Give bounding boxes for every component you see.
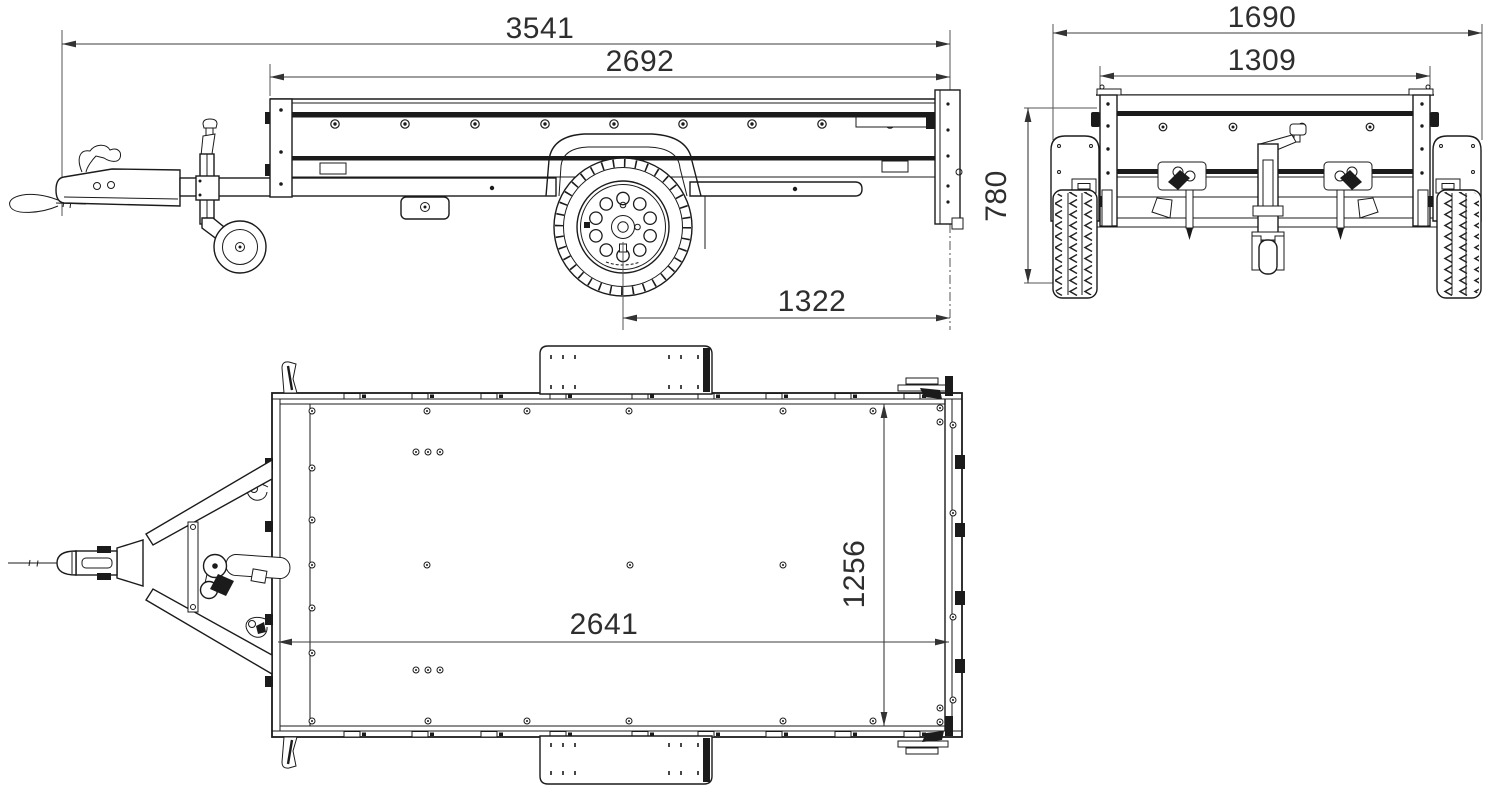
- edge-clip: [412, 394, 428, 400]
- fender-screw: [668, 743, 670, 747]
- jockey-tire-rear: [1259, 240, 1277, 274]
- corner-cap: [1097, 89, 1121, 95]
- edge-clip: [344, 732, 360, 738]
- cable-tick: [29, 560, 30, 566]
- coupler-tab: [97, 546, 111, 553]
- rivet-center: [681, 122, 684, 125]
- fender-screw: [550, 771, 552, 775]
- fender-screw: [680, 355, 682, 359]
- screw-hole-center: [872, 410, 874, 412]
- fender-screw: [562, 743, 564, 747]
- rivet-center: [612, 122, 615, 125]
- screw-hole-center: [872, 720, 874, 722]
- screw-hole-center: [311, 720, 313, 722]
- dim-bed-length: 2692: [270, 45, 950, 96]
- coupler-mount: [117, 540, 143, 586]
- latch-bar: [906, 378, 938, 384]
- drawbar-beam: [180, 178, 556, 196]
- fender-screw: [550, 743, 552, 747]
- wheel-bolt-hole: [600, 198, 612, 210]
- fender-plate: [540, 346, 712, 394]
- screw-hole-center: [628, 720, 630, 722]
- fender-screw: [668, 355, 670, 359]
- dim-label-bed-length: 2692: [606, 45, 675, 78]
- post-bolt: [946, 200, 949, 203]
- dim-label-axle-to-rear: 1322: [778, 285, 847, 318]
- edge-clip-tick: [362, 733, 366, 737]
- jockey-clamp: [196, 176, 219, 200]
- edge-clip-tick: [853, 733, 857, 737]
- frame-rail-rear: [690, 182, 862, 196]
- post-bolt: [946, 154, 949, 157]
- bracket-bolt-center: [424, 206, 427, 209]
- wheel-bolt-hole: [590, 230, 602, 242]
- screw-hole-center: [427, 669, 429, 671]
- wheel-bolt-hole: [634, 244, 646, 256]
- edge-clip-tick: [499, 733, 503, 737]
- hinge-tab: [955, 659, 965, 673]
- dim-label-overall-height: 780: [980, 170, 1013, 222]
- clamp-bolt: [199, 180, 202, 183]
- top-view-drawing: 2641 1256: [8, 346, 965, 784]
- fender-screw: [562, 355, 564, 359]
- corner-cap: [1409, 89, 1433, 95]
- fender-screw: [574, 385, 576, 389]
- screw-hole-center: [782, 720, 784, 722]
- post-bolt: [279, 182, 283, 186]
- fender-screw: [680, 385, 682, 389]
- fender-screw: [680, 771, 682, 775]
- fender-screw: [550, 385, 552, 389]
- front-corner-flag-top: [282, 362, 297, 393]
- clamp-block: [251, 569, 267, 583]
- post-bolt: [1420, 102, 1423, 105]
- coupler-handle: [79, 145, 120, 172]
- post-collar: [1253, 206, 1283, 216]
- side-view-drawing: 3541 2692: [10, 12, 963, 330]
- wheel-bolt-hole: [634, 198, 646, 210]
- fender-screw: [697, 385, 699, 389]
- post-bolt: [279, 150, 283, 154]
- screw-hole-center: [628, 410, 630, 412]
- rail-bolt: [793, 187, 797, 191]
- edge-clip-tick: [853, 395, 857, 399]
- post-bolt: [1106, 147, 1109, 150]
- hinge-tab: [955, 455, 965, 469]
- edge-clip: [766, 732, 782, 738]
- board-latch-left: [1152, 162, 1206, 240]
- latch-rail: [856, 117, 928, 127]
- screw-hole-center: [939, 707, 941, 709]
- edge-clip-tick: [716, 395, 720, 399]
- drawbar-arm-lower: [146, 589, 272, 674]
- post-bolt: [279, 108, 283, 112]
- rivet-center: [333, 122, 336, 125]
- screw-hole-center: [311, 607, 313, 609]
- coupler-tab: [97, 573, 111, 580]
- screw-hole-center: [952, 699, 954, 701]
- tire-tread: [1055, 192, 1095, 296]
- screw-hole-center: [939, 421, 941, 423]
- top-rail: [292, 112, 935, 118]
- screw-hole-center: [415, 451, 417, 453]
- hinge-tab: [955, 591, 965, 605]
- drawing-canvas: 3541 2692: [0, 0, 1500, 792]
- wheel-bolt-hole: [617, 192, 629, 204]
- dim-label-overall-length: 3541: [506, 12, 575, 45]
- rivet-center: [1369, 126, 1372, 129]
- edge-clip: [481, 732, 497, 738]
- post-bolt: [1106, 124, 1109, 127]
- screw-hole-center: [782, 564, 784, 566]
- fender-screw: [550, 355, 552, 359]
- top-fender: [540, 346, 712, 394]
- clamp-bolt: [199, 194, 202, 197]
- latch-strap: [1186, 190, 1193, 228]
- rear-view-drawing: 1690 1309 780: [980, 1, 1482, 298]
- support-strap: [1102, 190, 1112, 226]
- post-hinge-tab: [265, 112, 270, 124]
- post-bolt: [1420, 171, 1423, 174]
- screw-hole-center: [426, 410, 428, 412]
- wheel-bolt-hole: [590, 212, 602, 224]
- edge-clip: [835, 394, 851, 400]
- crank-knob: [1290, 124, 1306, 135]
- edge-clip-tick: [716, 733, 720, 737]
- latch-flag: [1152, 198, 1172, 218]
- screw-hole-center: [939, 721, 941, 723]
- fender-edge-band: [703, 738, 710, 782]
- support-strap: [1418, 190, 1428, 226]
- fender-screw: [562, 385, 564, 389]
- screw-hole-center: [939, 407, 941, 409]
- edge-clip-tick: [784, 395, 788, 399]
- dim-label-bed-inner-width: 1256: [838, 540, 871, 609]
- front-latch-hook-bottom: [246, 617, 268, 637]
- coupler-body: [56, 169, 180, 206]
- screw-hole-center: [311, 467, 313, 469]
- rivet-center: [750, 122, 753, 125]
- rivet-center: [1232, 126, 1235, 129]
- fender-screw: [668, 771, 670, 775]
- screw-hole-center: [311, 564, 313, 566]
- screw-hole-center: [311, 519, 313, 521]
- screw-hole-center: [952, 616, 954, 618]
- edge-clip: [412, 732, 428, 738]
- fender-screw: [562, 771, 564, 775]
- latch-flag: [1358, 198, 1378, 218]
- hook-eye: [249, 621, 256, 628]
- edge-clip: [904, 394, 920, 400]
- cable-loop: [10, 194, 58, 212]
- rear-foot: [952, 218, 963, 229]
- latch-pin: [945, 376, 953, 396]
- dim-label-bed-inner-length: 2641: [570, 608, 639, 641]
- right-tire: [1437, 190, 1481, 298]
- jockey-post: [1258, 144, 1278, 240]
- bottom-fender: [540, 736, 712, 784]
- edge-clip: [835, 732, 851, 738]
- dim-label-overall-width: 1690: [1228, 1, 1297, 34]
- screw-hole-center: [526, 720, 528, 722]
- latch-pin: [945, 716, 953, 736]
- fender-screw: [697, 771, 699, 775]
- wheel-bolt-hole: [644, 212, 656, 224]
- screw-hole-center: [782, 410, 784, 412]
- fender-edge-band: [703, 348, 710, 392]
- post-bolt: [946, 128, 949, 131]
- rivet-center: [543, 122, 546, 125]
- cap-bump: [1426, 85, 1430, 89]
- screw-hole-center: [311, 410, 313, 412]
- beam-bolt: [490, 186, 494, 190]
- edge-clip-tick: [430, 395, 434, 399]
- front-corner-flag-bottom: [282, 737, 297, 768]
- strap-tip: [1186, 228, 1193, 240]
- edge-clip: [481, 394, 497, 400]
- edge-clip-tick: [362, 395, 366, 399]
- edge-clip: [904, 732, 920, 738]
- fender-screw: [697, 355, 699, 359]
- rivet-center: [403, 122, 406, 125]
- fender-plate: [540, 736, 712, 784]
- top-rail: [1117, 111, 1413, 116]
- dim-label-inner-width: 1309: [1228, 44, 1297, 77]
- fender-screw: [574, 771, 576, 775]
- screw-hole-center: [426, 564, 428, 566]
- fender-screw: [680, 743, 682, 747]
- edge-tab: [265, 676, 273, 687]
- crank-arm: [201, 134, 215, 156]
- fender-screw: [574, 743, 576, 747]
- strap-tip: [1337, 228, 1344, 240]
- hook-lever: [256, 622, 266, 634]
- edge-clip-tick: [430, 733, 434, 737]
- hinge-knob: [1430, 112, 1439, 127]
- edge-clip-tick: [650, 395, 654, 399]
- edge-clip: [344, 394, 360, 400]
- latch-bar: [906, 748, 938, 754]
- fender-screw: [668, 385, 670, 389]
- screw-hole-center: [952, 424, 954, 426]
- latch-strap: [1337, 190, 1344, 228]
- screw-hole-center: [526, 410, 528, 412]
- wheel-bolt-hole: [644, 230, 656, 242]
- jockey-hub-center: [239, 246, 242, 249]
- latch-bar: [898, 741, 948, 747]
- screw-hole-center: [952, 512, 954, 514]
- rivet-center: [820, 122, 823, 125]
- cross-member: [188, 522, 198, 612]
- post-bolt: [1420, 124, 1423, 127]
- board-latch-right: [1324, 162, 1378, 240]
- screw-hole-center: [427, 720, 429, 722]
- post-bolt: [1420, 147, 1423, 150]
- fender-screw: [697, 743, 699, 747]
- rivet-center: [1162, 126, 1165, 129]
- screw-hole-center: [311, 652, 313, 654]
- edge-clip-tick: [499, 395, 503, 399]
- wheel-bolt-hole: [600, 244, 612, 256]
- cap-bump: [1100, 85, 1104, 89]
- screw-hole-center: [439, 669, 441, 671]
- screw-hole-center: [427, 451, 429, 453]
- tire-tread: [1439, 192, 1479, 296]
- dim-inner-width: 1309: [1100, 44, 1430, 94]
- hitch-coupler: [56, 145, 180, 206]
- left-tire: [1053, 190, 1097, 298]
- drawbar: [8, 460, 291, 674]
- post-bolt: [946, 184, 949, 187]
- drawbar-arm-upper: [146, 460, 272, 545]
- post-bolt: [1106, 171, 1109, 174]
- post-bolt: [946, 102, 949, 105]
- cable-tick: [37, 561, 38, 567]
- reflector-front: [320, 163, 346, 174]
- fender-screw: [574, 355, 576, 359]
- hinge-knob: [1091, 112, 1100, 127]
- post-hinge-tab: [265, 164, 270, 176]
- edge-clip-tick: [568, 395, 572, 399]
- reflector-rear: [882, 161, 908, 172]
- screw-hole-center: [439, 451, 441, 453]
- rim-mark: [584, 222, 590, 228]
- edge-clip: [766, 394, 782, 400]
- edge-tab: [265, 521, 273, 532]
- coupler-nose: [57, 551, 76, 575]
- crank-cap: [203, 119, 217, 128]
- rivet-center: [473, 122, 476, 125]
- screw-hole-center: [415, 669, 417, 671]
- hinge-tab: [955, 523, 965, 537]
- edge-clip-tick: [784, 733, 788, 737]
- post-bolt: [1106, 102, 1109, 105]
- screw-hole-center: [629, 564, 631, 566]
- clamp-bolt: [212, 563, 218, 569]
- trailer-dimension-drawing: 3541 2692: [0, 0, 1500, 792]
